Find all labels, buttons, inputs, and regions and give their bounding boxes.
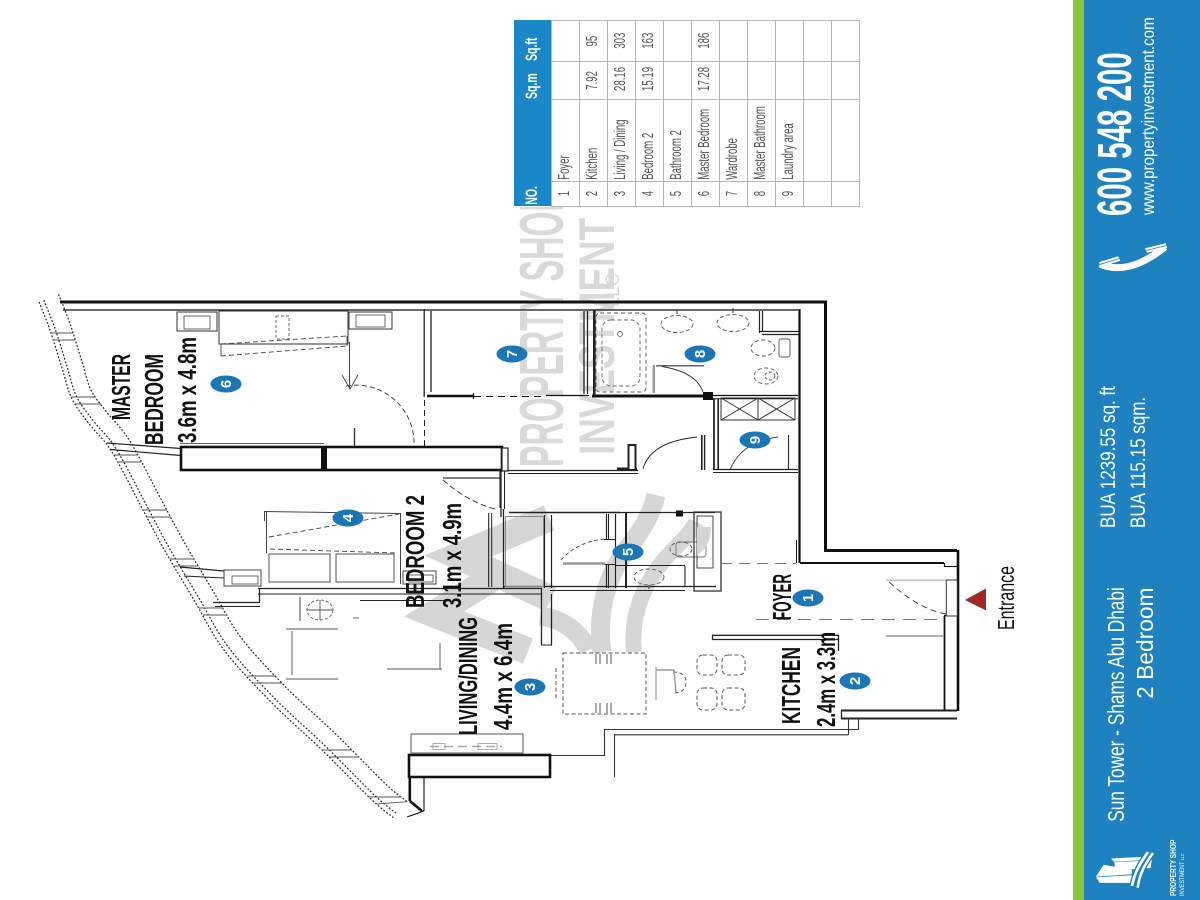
svg-text:FOYER: FOYER — [767, 574, 797, 620]
svg-text:9: 9 — [747, 436, 764, 444]
svg-text:MASTER: MASTER — [106, 354, 136, 420]
svg-text:Entrance: Entrance — [993, 566, 1019, 630]
svg-text:7: 7 — [504, 350, 521, 358]
svg-text:2: 2 — [847, 677, 864, 685]
svg-text:1: 1 — [800, 594, 817, 602]
svg-text:2.4m x 3.3m: 2.4m x 3.3m — [811, 632, 841, 727]
svg-text:4: 4 — [340, 513, 357, 522]
svg-text:6: 6 — [218, 380, 235, 388]
svg-text:LIVING/DINING: LIVING/DINING — [453, 617, 483, 735]
svg-text:INVESTMENT: INVESTMENT — [569, 218, 625, 455]
svg-text:BEDROOM: BEDROOM — [139, 354, 169, 445]
svg-text:KITCHEN: KITCHEN — [776, 647, 806, 724]
svg-text:5: 5 — [620, 548, 637, 556]
svg-text:PROPERTY SHOP: PROPERTY SHOP — [508, 190, 577, 467]
svg-text:8: 8 — [692, 350, 709, 358]
svg-text:3.1m x 4.9m: 3.1m x 4.9m — [437, 503, 467, 608]
svg-text:3.6m x 4.8m: 3.6m x 4.8m — [172, 337, 202, 443]
svg-text:4.4m x 6.4m: 4.4m x 6.4m — [488, 623, 518, 730]
svg-text:3: 3 — [522, 683, 539, 691]
svg-text:BEDROOM 2: BEDROOM 2 — [400, 495, 430, 608]
